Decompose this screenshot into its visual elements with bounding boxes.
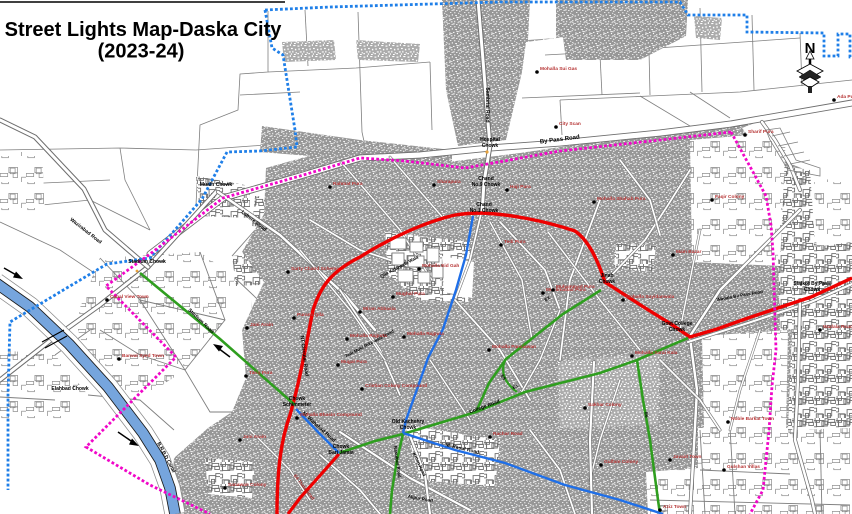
svg-text:Chowk: Chowk [669, 327, 686, 333]
svg-text:Ada Pura: Ada Pura [837, 94, 852, 100]
svg-text:(2023-24): (2023-24) [98, 41, 185, 63]
svg-text:Muain Chowk: Muain Chowk [200, 182, 232, 188]
svg-text:Cristian Colony Compound: Cristian Colony Compound [365, 383, 427, 389]
svg-text:Mohalla Eid Gah: Mohalla Eid Gah [422, 263, 459, 269]
svg-text:Sharapura: Sharapura [437, 179, 461, 185]
svg-text:Sanawan Colony: Sanawan Colony [228, 482, 267, 488]
svg-text:Barwal Syed Town: Barwal Syed Town [122, 353, 164, 359]
svg-text:Canal View Town: Canal View Town [110, 294, 149, 300]
svg-text:Stadium Chowk: Stadium Chowk [128, 259, 166, 265]
svg-text:Chowk: Chowk [599, 279, 616, 285]
svg-text:Aziz Town: Aziz Town [663, 504, 686, 510]
svg-text:E6: E6 [644, 412, 650, 418]
svg-text:Muhammad Pura: Muhammad Pura [556, 284, 595, 290]
svg-text:Tedi Pura: Tedi Pura [504, 239, 526, 245]
svg-text:Mohalla Rajputa: Mohalla Rajputa [407, 331, 444, 337]
svg-text:Mohalla Suyidanwala: Mohalla Suyidanwala [626, 294, 675, 300]
svg-text:No.9 Chowk: No.9 Chowk [472, 182, 501, 188]
svg-text:Sarty Chand Scheme: Sarty Chand Scheme [291, 266, 339, 272]
svg-text:Miran Abbasia: Miran Abbasia [363, 306, 396, 312]
svg-text:Mohalla Sui Gas: Mohalla Sui Gas [540, 66, 577, 72]
svg-text:Sharif Pura: Sharif Pura [748, 129, 774, 135]
svg-text:Street Lights Map-Daska City: Street Lights Map-Daska City [5, 19, 283, 41]
svg-text:Bari Jamia: Bari Jamia [328, 450, 354, 456]
svg-text:Mohalla Rajputa: Mohalla Rajputa [350, 333, 387, 339]
svg-text:Elahbad Chowk: Elahbad Chowk [51, 386, 88, 392]
svg-text:Faqir Colony: Faqir Colony [715, 194, 745, 200]
svg-text:Mugal Pura: Mugal Pura [341, 359, 367, 365]
svg-text:Sakhar Colony: Sakhar Colony [588, 402, 622, 408]
svg-text:Jani Arain: Jani Arain [250, 322, 273, 328]
svg-text:Purana Qila: Purana Qila [297, 312, 324, 318]
svg-text:Chowk: Chowk [804, 287, 821, 293]
svg-text:Gulfam Colony: Gulfam Colony [604, 459, 638, 465]
svg-text:Rachar Road: Rachar Road [493, 431, 523, 437]
svg-text:Mohalla Bhasin Compound: Mohalla Bhasin Compound [300, 412, 362, 418]
svg-text:No.1 Chowk: No.1 Chowk [470, 208, 499, 214]
svg-text:Tariq Pura: Tariq Pura [249, 370, 273, 376]
svg-text:Wadala Road: Wadala Road [823, 324, 852, 330]
svg-text:Noble Barkat Town: Noble Barkat Town [731, 416, 774, 422]
svg-text:Mohalla Pansiawan: Mohalla Pansiawan [492, 344, 536, 350]
svg-text:Mohalla Sarai Kala: Mohalla Sarai Kala [635, 350, 678, 356]
svg-text:Mughal Pura: Mughal Pura [396, 291, 425, 297]
svg-text:Schimmeter: Schimmeter [283, 402, 312, 408]
svg-text:Chowk: Chowk [482, 143, 499, 149]
svg-text:Gulshan Villas: Gulshan Villas [727, 464, 760, 470]
svg-text:Sambrial Road: Sambrial Road [484, 87, 490, 122]
svg-text:Jani Arain: Jani Arain [243, 434, 266, 440]
svg-text:City Scan: City Scan [559, 121, 581, 127]
svg-text:Main Bazar: Main Bazar [676, 249, 701, 255]
svg-text:Chowk: Chowk [400, 425, 417, 431]
svg-text:Mohalla Shahab Pura: Mohalla Shahab Pura [597, 196, 646, 202]
svg-text:Javaid Town: Javaid Town [673, 454, 702, 460]
svg-text:Rahmat Pura: Rahmat Pura [333, 181, 363, 187]
svg-text:Haji Pura: Haji Pura [510, 184, 531, 190]
